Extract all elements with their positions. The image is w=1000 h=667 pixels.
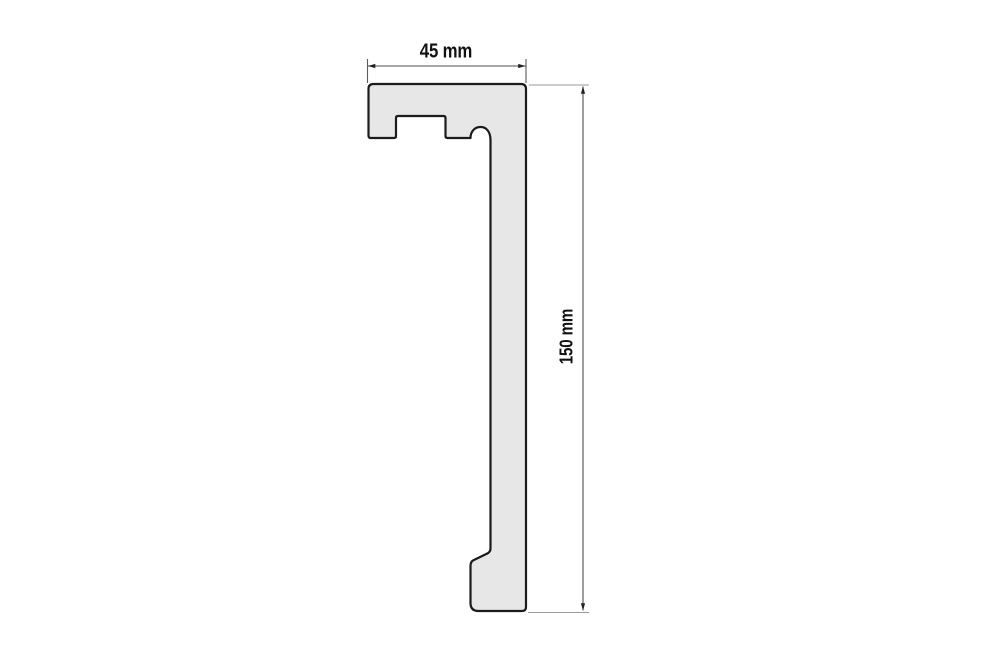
- profile-shape: [369, 84, 527, 611]
- profile-diagram: 45 mm 150 mm: [0, 0, 1000, 667]
- dimension-arrow-right-icon: [518, 64, 526, 68]
- dimension-arrow-up-icon: [581, 86, 585, 94]
- dimension-arrow-down-icon: [581, 603, 585, 611]
- height-dimension: 150 mm: [528, 85, 589, 613]
- height-dimension-label: 150 mm: [556, 309, 577, 364]
- width-dimension: 45 mm: [368, 39, 527, 83]
- diagram-canvas: 45 mm 150 mm: [0, 0, 1000, 667]
- width-dimension-label: 45 mm: [420, 39, 472, 62]
- dimension-arrow-left-icon: [368, 64, 376, 68]
